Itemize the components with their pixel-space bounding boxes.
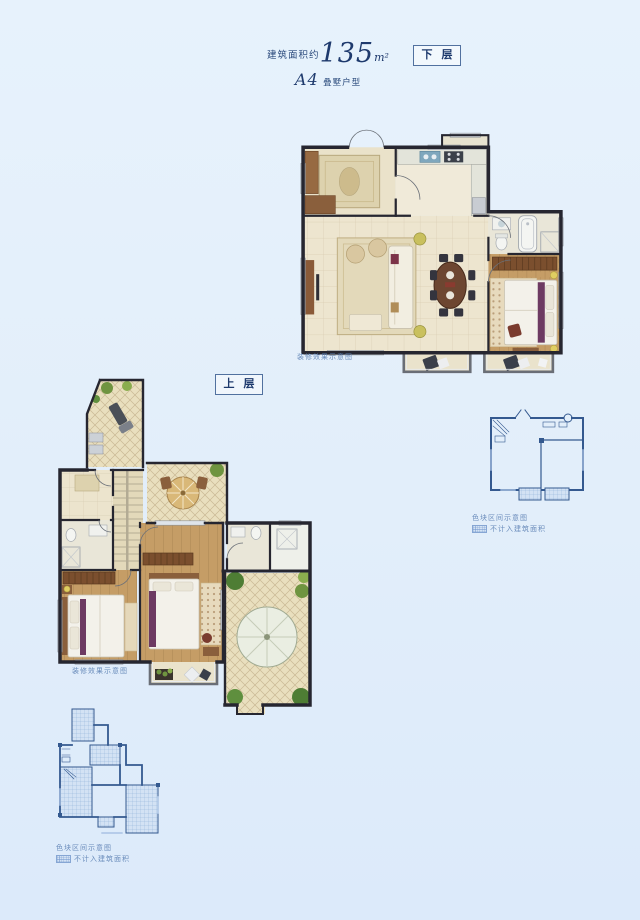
area-prefix: 建筑面积约: [267, 50, 320, 61]
legend-swatch: [56, 855, 71, 863]
unit-code: A4: [295, 70, 319, 89]
entry-hall: [305, 151, 380, 213]
schematic-lower-drawing: [477, 406, 597, 508]
floor-plan-upper: [55, 375, 315, 715]
floor-plan-upper-caption: 装修效果示意图: [72, 666, 128, 676]
area-value: 135: [320, 38, 375, 69]
floor-plan-lower-drawing: [291, 125, 573, 375]
unit-type-label: A4 叠墅户型: [233, 70, 423, 90]
legend-label: 不计入建筑面积: [490, 524, 546, 534]
area-line: 建筑面积约135m²: [233, 38, 423, 69]
legend-swatch: [472, 525, 487, 533]
schematic-upper: [52, 705, 178, 839]
area-unit: m²: [374, 51, 389, 64]
page-background: { "header": { "area_prefix": "建筑面积约", "a…: [0, 0, 640, 920]
floor-plan-lower: [291, 125, 573, 375]
floor-plan-upper-drawing: [55, 375, 315, 715]
schematic-lower-caption: 色块区间示意图: [472, 513, 528, 523]
unit-suffix: 叠墅户型: [323, 77, 361, 87]
legend-label: 不计入建筑面积: [74, 854, 130, 864]
schematic-upper-legend: 不计入建筑面积: [56, 854, 130, 864]
floor-plan-lower-caption: 装修效果示意图: [297, 352, 353, 362]
schematic-upper-caption: 色块区间示意图: [56, 843, 112, 853]
schematic-lower: [477, 406, 597, 508]
floor-label-lower: 下 层: [413, 45, 461, 66]
schematic-lower-legend: 不计入建筑面积: [472, 524, 546, 534]
schematic-upper-drawing: [52, 705, 178, 839]
building-area-title: 建筑面积约135m² A4 叠墅户型: [233, 38, 423, 90]
